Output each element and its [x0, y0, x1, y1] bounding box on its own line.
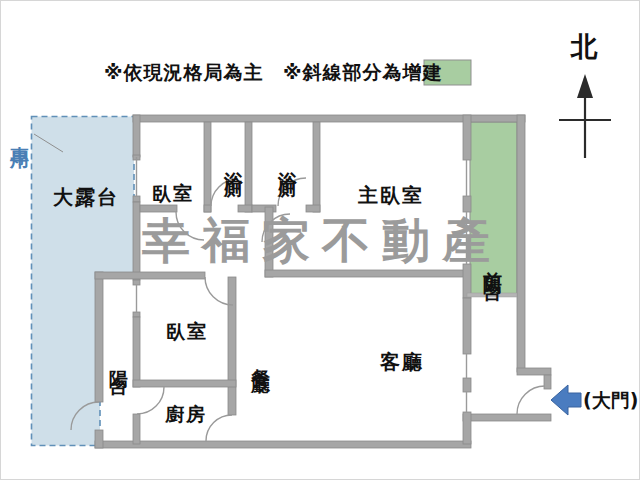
main-door-arrow-icon [551, 385, 581, 415]
room-label-kitchen: 廚房 [165, 405, 207, 424]
north-arrow-icon [559, 74, 611, 158]
bathroom2-door-arc [278, 178, 306, 206]
kitchen-east-door-arc [206, 415, 232, 441]
kitchen-west-door-arc [137, 387, 164, 414]
room-label-bedroom-top: 臥室 [152, 184, 194, 203]
room-label-dining: 餐廳 [252, 353, 271, 363]
exclusive-use-label: 專用 [11, 130, 30, 140]
terrace-area [32, 117, 135, 446]
room-label-bathroom-2: 浴廁 [279, 157, 298, 167]
bathroom1-door-arc [211, 179, 238, 206]
room-label-living: 客廳 [380, 352, 424, 372]
legend-current-layout-note: ※依現況格局為主 [104, 63, 263, 82]
room-label-bedroom-lower: 臥室 [166, 322, 208, 341]
room-label-master-bedroom: 主臥室 [358, 185, 424, 205]
legend-addition-note: ※斜線部分為增建 [283, 63, 442, 82]
room-label-balcony: 陽台 [110, 355, 129, 365]
main-door-label: (大門) [583, 391, 638, 410]
floor-plan-page: 幸福家不動產 ※依現況格局為主 ※斜線部分為增建 北 大露台 臥室 浴廁 浴廁 … [0, 0, 640, 480]
room-label-terrace: 大露台 [53, 187, 119, 207]
room-label-bathroom-1: 浴廁 [225, 157, 244, 167]
main-entry-door-arc [517, 386, 545, 414]
watermark: 幸福家不動產 [142, 216, 502, 264]
north-label: 北 [571, 33, 598, 60]
room-label-front-balcony: 前陽台 [484, 257, 503, 272]
